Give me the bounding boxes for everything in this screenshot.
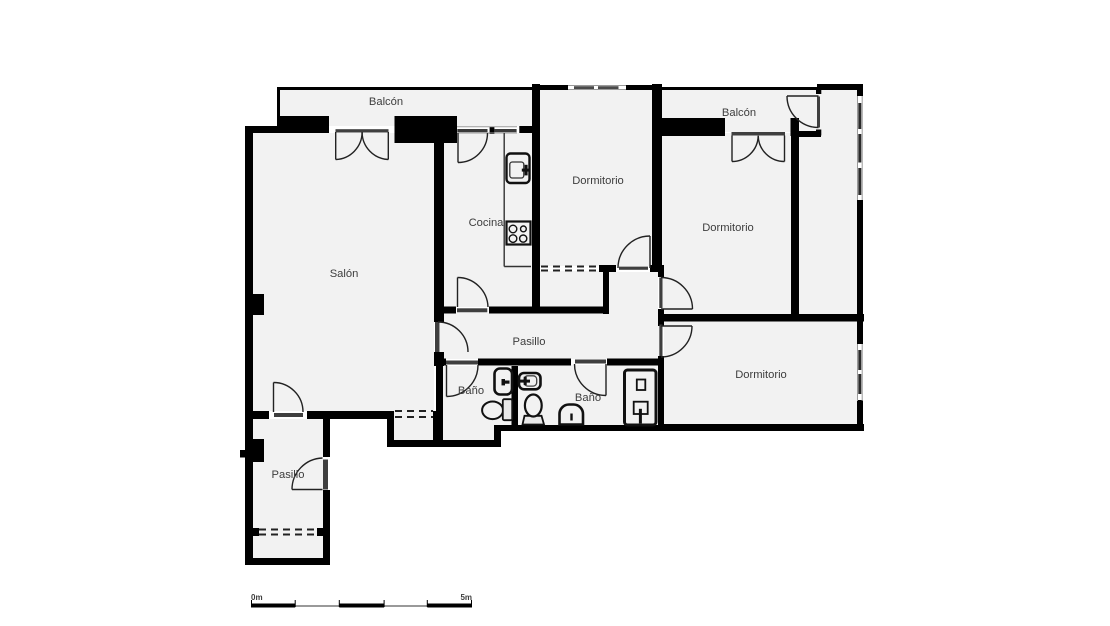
svg-text:Balcón: Balcón: [722, 107, 756, 119]
svg-text:Dormitorio: Dormitorio: [572, 175, 624, 187]
svg-text:0m: 0m: [251, 593, 263, 602]
svg-text:Dormitorio: Dormitorio: [735, 369, 787, 381]
svg-text:5m: 5m: [460, 593, 472, 602]
svg-text:Dormitorio: Dormitorio: [702, 222, 754, 234]
svg-text:Balcón: Balcón: [369, 96, 403, 108]
svg-text:Pasillo: Pasillo: [272, 469, 305, 481]
svg-text:Cocina: Cocina: [469, 217, 505, 229]
svg-text:Baño: Baño: [575, 392, 601, 404]
svg-text:Salón: Salón: [330, 268, 359, 280]
svg-text:Baño: Baño: [458, 385, 484, 397]
svg-text:Pasillo: Pasillo: [513, 336, 546, 348]
